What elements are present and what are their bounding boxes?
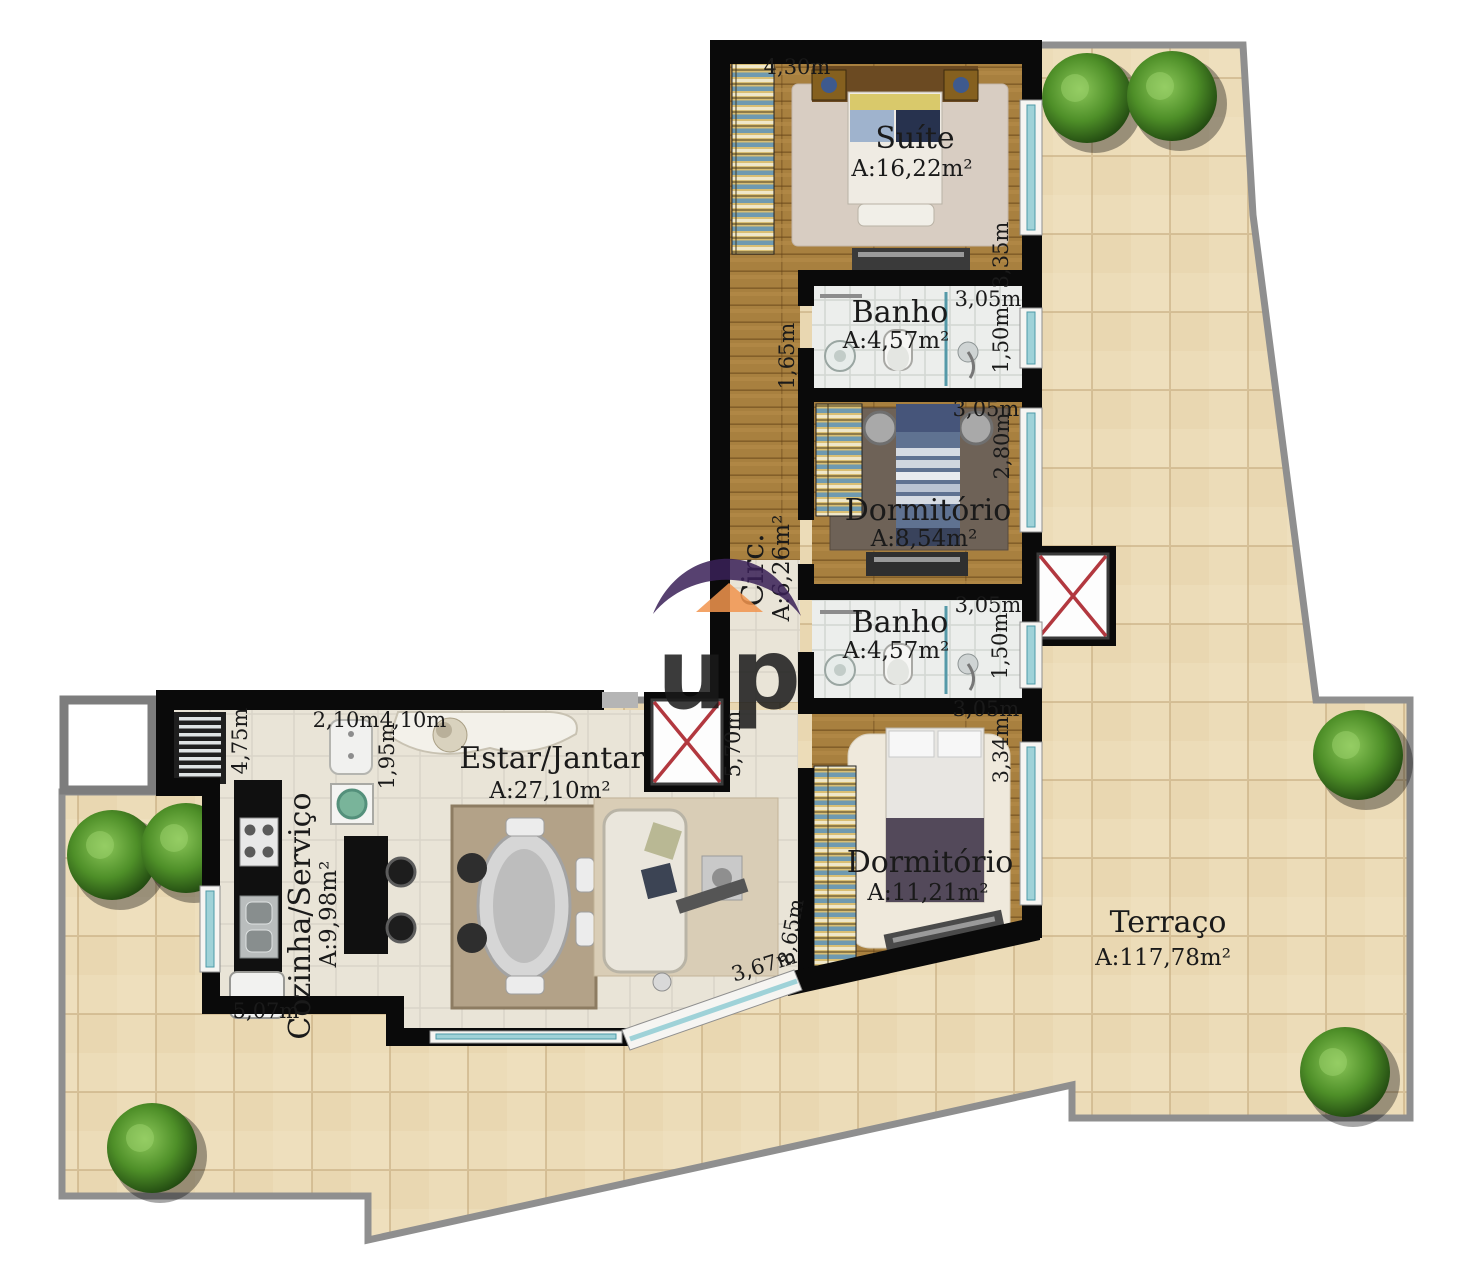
suite-dresser-top [858, 252, 964, 257]
dorm1-dresser-top [874, 557, 960, 562]
dorm1-pillow [896, 404, 960, 432]
dorm2-pillow [938, 731, 981, 757]
dining-chair [457, 853, 487, 883]
suite-label: Suíte [875, 121, 954, 156]
dining-chair [576, 858, 594, 892]
terrace-area: A:117,78m² [1094, 945, 1231, 971]
window-dorm2 [1020, 742, 1042, 905]
dim-cozinha-left: 4,75m [228, 708, 252, 775]
dim-suite-right: 3,35m [989, 222, 1013, 289]
kitchen-island [344, 836, 388, 954]
window-banho1 [1020, 308, 1042, 368]
stool [387, 914, 415, 942]
suite-lamp [821, 77, 837, 93]
floorplan-svg: Terraço A:117,78m² [0, 0, 1464, 1280]
banho2-label: Banho [852, 605, 949, 640]
floor-lamp [653, 973, 671, 991]
estar-area: A:27,10m² [488, 778, 610, 804]
dining-table-top [493, 849, 555, 963]
dim-cozinha-bottom: 5,07m [233, 999, 300, 1023]
suite-area: A:16,22m² [850, 156, 972, 182]
stool [387, 858, 415, 886]
estar-label: Estar/Jantar [459, 741, 645, 776]
dim-banho1-right: 1,50m [989, 307, 1013, 374]
banho2-area: A:4,57m² [842, 638, 950, 664]
dim-dorm2-right: 3,34m [989, 717, 1013, 784]
service-duct-box [64, 700, 152, 790]
window-suite [1020, 100, 1042, 235]
circ-area: A:6,26m² [769, 515, 795, 623]
dim-banho2-right: 1,50m [988, 613, 1012, 680]
entry-door-mat [602, 692, 638, 708]
floorplan-canvas: { "logo": { "letters": "up" }, "rooms": … [0, 0, 1464, 1280]
dim-estar-left: 1,95m [375, 723, 399, 790]
logo-text: up [657, 618, 805, 732]
dining-chair [576, 912, 594, 946]
banho1-label: Banho [852, 295, 949, 330]
dorm2-area: A:11,21m² [866, 880, 988, 906]
window-kitchen [200, 886, 220, 972]
cozinha-area: A:9,98m² [316, 861, 342, 969]
dining-chair [506, 976, 544, 994]
suite-bench [858, 204, 934, 226]
dim-banho1-left: 1,65m [775, 323, 799, 390]
dorm1-label: Dormitório [845, 493, 1012, 528]
up-logo: up [653, 559, 805, 732]
dorm2-label: Dormitório [847, 845, 1014, 880]
dorm1-area: A:8,54m² [870, 526, 978, 552]
suite-pillow [850, 94, 940, 110]
dim-cozinha-top: 2,10m [313, 708, 380, 732]
dorm1-nightstand [864, 412, 896, 444]
dorm2-pillow [889, 731, 934, 757]
washing-machine-door [338, 790, 366, 818]
suite-dresser [852, 248, 970, 270]
terrace-label: Terraço [1110, 905, 1227, 940]
sink-drain [834, 664, 846, 676]
elevator-shaft-icon [1030, 546, 1116, 646]
dining-chair [457, 923, 487, 953]
stove-icon [240, 818, 278, 866]
dim-dorm1-right: 2,80m [990, 413, 1014, 480]
dining-chair [506, 818, 544, 836]
window-banho2 [1020, 622, 1042, 688]
suite-lamp [953, 77, 969, 93]
suite-wardrobe [732, 62, 774, 254]
window-dorm1 [1020, 408, 1042, 532]
dim-suite-top: 4,30m [764, 55, 831, 79]
dorm1-dresser [866, 552, 968, 576]
window-living-south [430, 1031, 622, 1043]
banho1-area: A:4,57m² [842, 328, 950, 354]
